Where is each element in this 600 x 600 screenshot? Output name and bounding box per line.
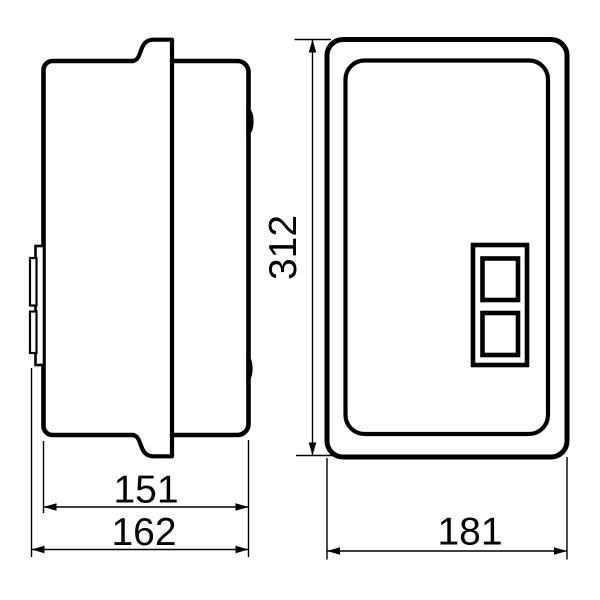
mounting-flange-line	[133, 40, 172, 457]
din-clip	[30, 246, 44, 365]
display-window-top-opening	[483, 259, 519, 301]
dim-label-162: 162	[111, 511, 176, 554]
display-window-bottom-opening	[483, 313, 519, 355]
hinge-bump-top	[246, 107, 253, 137]
technical-drawing-canvas: 151 162 312 181	[0, 0, 600, 600]
din-clip-spring-upper	[30, 258, 37, 306]
front-view	[327, 40, 567, 458]
dim-label-151: 151	[113, 469, 178, 512]
side-view-body-outline	[44, 61, 249, 435]
enclosure-dimension-drawing: 151 162 312 181	[0, 0, 600, 600]
din-clip-spring-lower	[30, 312, 37, 354]
front-view-outline	[327, 40, 567, 458]
dimension-162: 162	[32, 368, 249, 557]
display-window	[473, 245, 527, 365]
dim-label-312: 312	[262, 215, 305, 280]
dimension-181: 181	[327, 457, 567, 560]
dim-label-181: 181	[437, 511, 502, 554]
side-view	[30, 40, 254, 457]
hinge-bump-bottom	[246, 355, 252, 383]
